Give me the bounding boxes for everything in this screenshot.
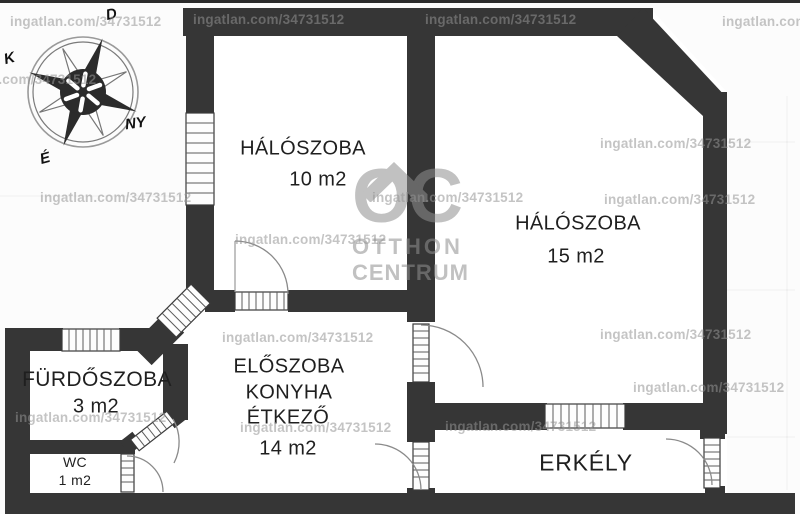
window-bedroom-large — [545, 404, 625, 428]
window-bedroom-small — [186, 113, 214, 205]
room-area-bedroom-small: 10 m2 — [289, 169, 347, 192]
floor-plan-drawing — [0, 0, 800, 514]
wall-outer-left — [5, 328, 30, 514]
window-bathroom — [62, 329, 120, 351]
room-label-bedroom-large: HÁLÓSZOBA — [515, 213, 641, 236]
room-label-hall-line1: ELŐSZOBA — [233, 356, 344, 379]
compass-label-west: NY — [124, 114, 147, 134]
room-label-bedroom-small: HÁLÓSZOBA — [240, 138, 366, 161]
room-area-bathroom: 3 m2 — [73, 396, 119, 419]
room-label-balcony: ERKÉLY — [539, 450, 633, 477]
wall-mid-vertical — [407, 8, 435, 322]
wall-right — [703, 92, 727, 434]
wall-bathroom-top — [119, 328, 152, 351]
room-area-bedroom-large: 15 m2 — [547, 246, 605, 269]
room-label-hall-line2: KONYHA — [246, 382, 333, 405]
room-label-wc: WC — [63, 454, 87, 470]
room-label-hall-line3: ÉTKEZŐ — [247, 407, 329, 430]
wall-corner — [700, 427, 725, 439]
room-area-wc: 1 m2 — [59, 472, 92, 488]
wall-left-lower — [186, 203, 214, 297]
floor-plan: D K NY É HÁLÓSZOBA 10 m2 HÁLÓSZOBA 15 m2… — [0, 0, 800, 514]
image-top-border — [0, 0, 800, 3]
wall-bathroom-wc-divider — [28, 440, 135, 454]
wall-bottom — [5, 493, 795, 514]
wall-bedroom-small-bottom — [288, 290, 407, 312]
room-label-bathroom: FÜRDŐSZOBA — [22, 368, 172, 392]
compass-rose-icon — [0, 5, 170, 179]
wall-bedroom-large-bottom — [623, 403, 703, 430]
wall-bedroom-large-bottom — [407, 403, 547, 430]
wall-left-upper — [186, 8, 214, 115]
room-area-hall: 14 m2 — [259, 438, 317, 461]
